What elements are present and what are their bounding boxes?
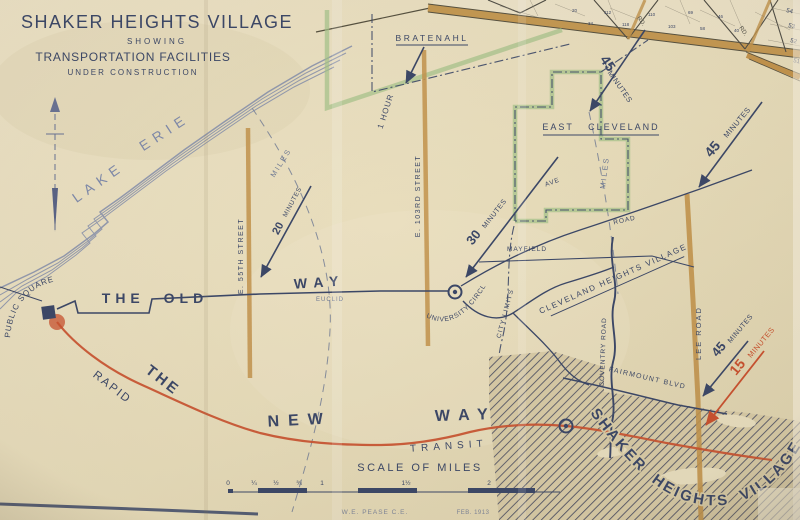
map-photo: MILES MILES LAKE ERIE SHAKER HEIGHTS VIL… xyxy=(0,0,800,520)
shaker-heights-map: MILES MILES LAKE ERIE SHAKER HEIGHTS VIL… xyxy=(0,0,800,520)
photo-vignette xyxy=(0,0,800,520)
